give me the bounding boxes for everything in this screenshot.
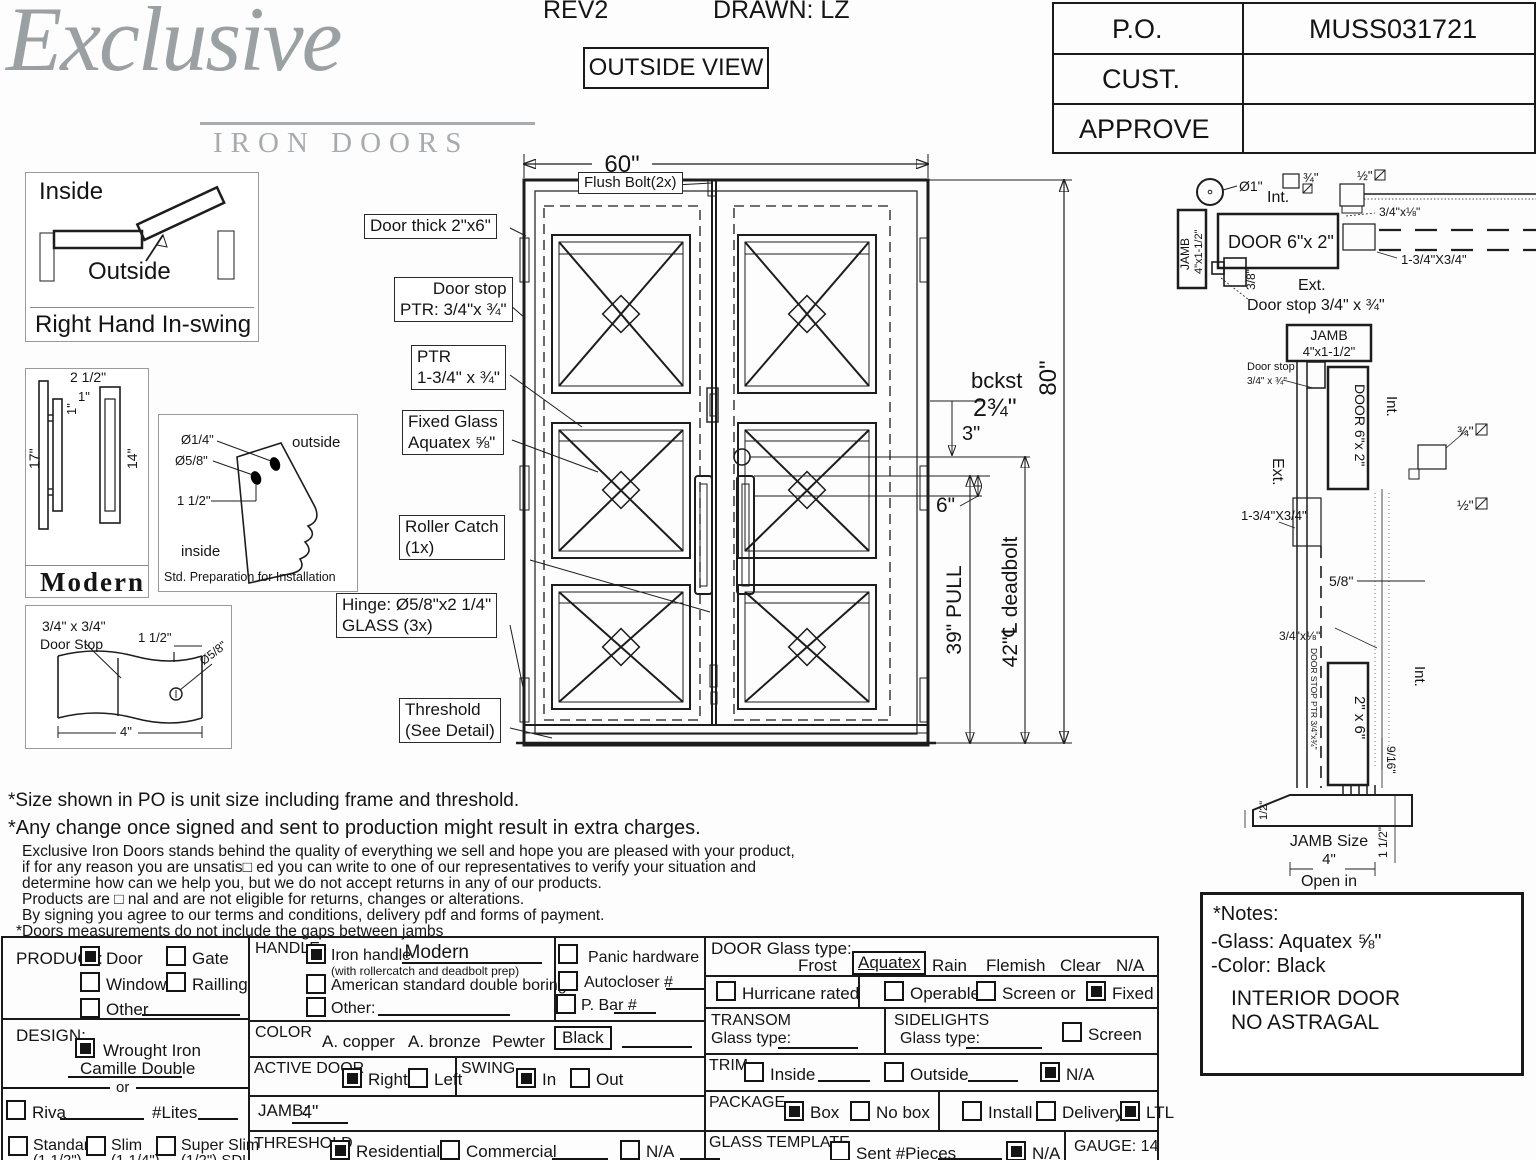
product-other-line[interactable] (142, 996, 240, 1016)
rev-label: REV2 (543, 0, 608, 25)
jamb-line (292, 1104, 348, 1124)
prep-caption: Std. Preparation for Installation (164, 570, 336, 584)
svg-text:80": 80" (1035, 360, 1062, 395)
dim-17: 17" (26, 448, 42, 469)
roller-l2: (1x) (405, 538, 499, 559)
hurricane-label: Hurricane rated (742, 984, 859, 1004)
doorstop-detail: 3/4" x 3/4" Door Stop 1 1/2" Ø5/8" 4" (25, 605, 232, 749)
package-nobox-checkbox[interactable] (850, 1101, 870, 1121)
design-slim-sub: (1 1/4") (111, 1152, 160, 1160)
notes-color: -Color: Black (1211, 955, 1325, 978)
threshold-l2: (See Detail) (405, 721, 495, 742)
gt-sent-checkbox[interactable] (830, 1141, 850, 1160)
svg-text:bckst: bckst (971, 368, 1022, 393)
stop-dim-112: 1 1/2" (138, 630, 172, 645)
handle-other-label: Other: (331, 1000, 375, 1018)
design-or-line-left (2, 1078, 110, 1089)
modern-handle-box: 2 1/2" 1" 1" 17" 14" Modern (25, 368, 149, 598)
svg-text:Ø1": Ø1" (1239, 178, 1263, 194)
door-stop-l1: Door stop (400, 279, 507, 300)
swing-diagram (26, 173, 258, 303)
po-value[interactable]: MUSS031721 (1309, 14, 1477, 45)
svg-text:3/4" x ¾": 3/4" x ¾" (1247, 376, 1287, 387)
transom-glass-line[interactable] (778, 1030, 858, 1049)
drawing-sheet: Exclusive IRON DOORS REV2 DRAWN: LZ OUTS… (0, 0, 1536, 1160)
handle-iron-checkbox[interactable] (306, 944, 326, 964)
x-panels (552, 235, 876, 709)
handle-american-label: American standard double boring (331, 977, 567, 995)
svg-text:2" x 6": 2" x 6" (1351, 696, 1368, 739)
trim-inside-label: Inside (770, 1065, 815, 1085)
svg-text:3/4"x⅛": 3/4"x⅛" (1279, 629, 1320, 643)
svg-text:4"x1-1/2": 4"x1-1/2" (1303, 344, 1356, 359)
callout-threshold: Threshold (See Detail) (399, 698, 501, 743)
svg-text:Int.: Int. (1267, 189, 1289, 206)
product-door-label: Door (106, 949, 143, 969)
product-railling-label: Railling (192, 975, 248, 995)
threshold-na-label: N/A (646, 1142, 674, 1160)
design-wrought-checkbox[interactable] (75, 1038, 95, 1058)
disclaimer-changes: *Any change once signed and sent to prod… (8, 817, 701, 840)
threshold-commercial-label: Commercial (466, 1142, 557, 1160)
svg-text:3/4"x⅛": 3/4"x⅛" (1379, 205, 1420, 219)
transom-label: TRANSOM (711, 1012, 791, 1030)
dim-dia14: Ø1/4" (181, 432, 214, 447)
outside-view-label: OUTSIDE VIEW (589, 54, 764, 82)
active-right-label: Right (368, 1070, 408, 1090)
divider-gauge (1064, 1132, 1066, 1160)
autocloser-label: Autocloser # (584, 974, 673, 992)
trim-inside-line[interactable] (818, 1062, 870, 1082)
svg-text:9/16": 9/16" (1384, 746, 1398, 774)
color-line[interactable] (622, 1028, 692, 1048)
dim-14: 14" (124, 448, 140, 469)
svg-text:3/8": 3/8" (1244, 269, 1258, 290)
handle-other-line[interactable] (378, 996, 510, 1016)
svg-text:3": 3" (962, 423, 980, 445)
product-window-checkbox[interactable] (80, 972, 100, 992)
panic-checkbox[interactable] (558, 944, 578, 964)
inside-note: inside (181, 543, 220, 560)
gt-na-label: N/A (1032, 1144, 1060, 1160)
swing-out-checkbox[interactable] (570, 1068, 590, 1088)
active-left-checkbox[interactable] (408, 1068, 428, 1088)
package-install-label: Install (988, 1103, 1032, 1123)
glass-aquatex-selected[interactable]: Aquatex (852, 951, 926, 975)
color-copper[interactable]: A. copper (322, 1032, 395, 1052)
door-thick-label: Door thick 2"x6" (370, 216, 491, 235)
svg-text:1-3/4"X3/4": 1-3/4"X3/4" (1241, 508, 1307, 523)
notes-glass: -Glass: Aquatex ⅝" (1211, 931, 1382, 954)
svg-text:Int.: Int. (1383, 396, 1400, 417)
glass-aquatex-label: Aquatex (858, 953, 920, 972)
dim-1a: 1" (64, 403, 79, 415)
gauge-value: GAUGE: 14 (1074, 1138, 1158, 1156)
fixed-label: Fixed (1112, 984, 1154, 1004)
gt-na-checkbox[interactable] (1006, 1141, 1026, 1160)
svg-text:JAMB: JAMB (1310, 327, 1347, 343)
threshold-na-checkbox[interactable] (620, 1140, 640, 1160)
design-lites-label: #Lites (152, 1103, 197, 1123)
svg-text:DOOR 6"x 2": DOOR 6"x 2" (1228, 232, 1334, 252)
callout-roller-catch: Roller Catch (1x) (399, 515, 505, 560)
threshold-residential-checkbox[interactable] (330, 1140, 350, 1160)
svg-text:1/2": 1/2" (1258, 801, 1270, 820)
operable-checkbox[interactable] (884, 981, 904, 1001)
design-or-line-right (136, 1078, 248, 1089)
design-lites-line[interactable] (198, 1100, 238, 1120)
handle-other-checkbox[interactable] (306, 997, 326, 1017)
hinge-l1: Hinge: Ø5/8"x2 1/4" (342, 595, 491, 616)
product-railling-checkbox[interactable] (166, 972, 186, 992)
fixed-checkbox[interactable] (1086, 981, 1106, 1001)
trim-outside-line[interactable] (968, 1062, 1018, 1082)
outside-view-box: OUTSIDE VIEW (583, 47, 769, 89)
trim-label: TRIM (709, 1057, 748, 1075)
svg-text:6": 6" (936, 494, 955, 517)
swing-caption: Right Hand In-swing (35, 311, 251, 339)
glass-clear[interactable]: Clear (1060, 956, 1101, 976)
threshold-commercial-checkbox[interactable] (440, 1140, 460, 1160)
approve-label: APPROVE (1079, 114, 1210, 145)
svg-text:½": ½" (1357, 168, 1373, 183)
product-window-label: Window (106, 975, 166, 995)
svg-text:1-3/4"X3/4": 1-3/4"X3/4" (1401, 252, 1467, 267)
screen-or-label: Screen or (1002, 984, 1076, 1004)
design-model-line (68, 1058, 182, 1078)
glass-flemish[interactable]: Flemish (986, 956, 1046, 976)
product-gate-checkbox[interactable] (166, 946, 186, 966)
cust-label: CUST. (1102, 64, 1180, 95)
stop-dim-label1: 3/4" x 3/4" (42, 618, 106, 634)
trim-na-checkbox[interactable] (1040, 1062, 1060, 1082)
package-ltl-checkbox[interactable] (1120, 1101, 1140, 1121)
deadbolt-circle (734, 449, 750, 465)
svg-text:2¾": 2¾" (973, 394, 1017, 422)
design-riva-checkbox[interactable] (6, 1100, 26, 1120)
design-standard-checkbox[interactable] (8, 1136, 28, 1156)
sidelights-label: SIDELIGHTS (894, 1012, 989, 1030)
design-standard-sub: (1 1/2") (33, 1152, 82, 1160)
screen-or-checkbox[interactable] (976, 981, 996, 1001)
modern-caption: Modern (40, 567, 145, 598)
color-pewter[interactable]: Pewter (492, 1032, 545, 1052)
swing-in-checkbox[interactable] (516, 1068, 536, 1088)
svg-text:Door stop 3/4" x ¾": Door stop 3/4" x ¾" (1247, 297, 1385, 314)
notes-interior-door: INTERIOR DOOR (1231, 987, 1400, 1011)
dim-dia58: Ø5/8" (175, 453, 208, 468)
package-delivery-checkbox[interactable] (1036, 1101, 1056, 1121)
drawn-label: DRAWN: LZ (713, 0, 850, 25)
ptr-l2: 1-3/4" x ¾" (417, 368, 500, 389)
svg-text:Int.: Int. (1411, 666, 1428, 687)
package-install-checkbox[interactable] (962, 1101, 982, 1121)
glass-frost[interactable]: Frost (798, 956, 837, 976)
fixed-glass-l2: Aquatex ⅝" (408, 433, 498, 454)
color-bronze[interactable]: A. bronze (408, 1032, 481, 1052)
svg-text:¾": ¾" (1303, 170, 1319, 185)
swing-legend: Inside Outside Right Hand In-swing (25, 172, 259, 342)
active-left-label: Left (434, 1070, 462, 1090)
fixed-glass-l1: Fixed Glass (408, 412, 498, 433)
dim-2-1-2: 2 1/2" (70, 369, 106, 385)
flush-bolt-label: Flush Bolt(2x) (584, 174, 677, 191)
po-label: P.O. (1112, 14, 1163, 45)
svg-text:JAMB Size: JAMB Size (1290, 833, 1368, 850)
svg-text:Ext.: Ext. (1298, 277, 1326, 294)
package-box-label: Box (810, 1103, 839, 1123)
color-black-selected[interactable]: Black (554, 1026, 612, 1050)
active-right-checkbox[interactable] (342, 1068, 362, 1088)
logo-exclusive: Exclusive (6, 0, 340, 92)
divider-package (938, 1092, 940, 1130)
hurricane-checkbox[interactable] (716, 981, 736, 1001)
svg-text:Ext.: Ext. (1269, 458, 1286, 486)
stop-dim-4: 4" (120, 724, 132, 739)
callout-door-thick: Door thick 2"x6" (364, 214, 497, 239)
swing-in-label: In (542, 1070, 556, 1090)
glass-template-label: GLASS TEMPLATE (709, 1134, 850, 1152)
notes-no-astragal: NO ASTRAGAL (1231, 1011, 1379, 1035)
prep-box: Ø1/4" outside Ø5/8" 1 1/2" inside Std. P… (158, 414, 358, 592)
package-label: PACKAGE (709, 1094, 785, 1112)
autocloser-line[interactable] (666, 970, 704, 990)
svg-text:4"x1-1/2": 4"x1-1/2" (1193, 229, 1205, 274)
gt-sent-line[interactable] (938, 1140, 1002, 1160)
stop-dim-label2: Door Stop (40, 636, 103, 652)
notes-box: *Notes: -Glass: Aquatex ⅝" -Color: Black… (1200, 892, 1524, 1076)
sidelights-screen-label: Screen (1088, 1025, 1142, 1045)
svg-text:DOOR STOP PTR 3/4"x¾": DOOR STOP PTR 3/4"x¾" (1309, 648, 1319, 750)
svg-text:½": ½" (1457, 497, 1474, 513)
svg-text:42"℄ deadbolt: 42"℄ deadbolt (999, 536, 1022, 667)
pbar-checkbox[interactable] (556, 994, 576, 1014)
handle-american-checkbox[interactable] (306, 974, 326, 994)
svg-text:5/8": 5/8" (1329, 573, 1353, 589)
door-stop-l2: PTR: 3/4"x ¾" (400, 300, 507, 321)
side-section-detail: JAMB 4"x1-1/2" Door stop 3/4" x ¾" Ext. … (1235, 318, 1535, 895)
glass-rain[interactable]: Rain (932, 956, 967, 976)
dim-1b: 1" (78, 389, 90, 404)
handle-iron-line (402, 944, 542, 964)
color-label: COLOR (255, 1024, 312, 1042)
svg-text:4": 4" (1322, 851, 1336, 868)
callout-door-stop: Door stop PTR: 3/4"x ¾" (394, 277, 513, 322)
head-section-detail: Ø1" Int. ¾" ½" JAMB 4"x1-1/2" DOOR 6"x 2… (1165, 158, 1536, 333)
product-gate-label: Gate (192, 949, 229, 969)
logo-underline (200, 122, 535, 125)
trim-na-label: N/A (1066, 1065, 1094, 1085)
glass-na[interactable]: N/A (1116, 956, 1144, 976)
panic-label: Panic hardware (588, 949, 699, 967)
divider-transom (884, 1009, 886, 1053)
svg-text:Door stop: Door stop (1247, 361, 1295, 373)
dim-1-1-2: 1 1/2" (177, 493, 211, 508)
po-table: P.O. MUSS031721 CUST. APPROVE (1052, 2, 1536, 154)
design-riva-line[interactable] (60, 1100, 144, 1120)
package-box-checkbox[interactable] (784, 1101, 804, 1121)
disclaimer-size: *Size shown in PO is unit size including… (8, 790, 519, 812)
notes-title: *Notes: (1213, 903, 1279, 926)
callout-hinge: Hinge: Ø5/8"x2 1/4" GLASS (3x) (336, 593, 497, 638)
hinge-l2: GLASS (3x) (342, 616, 491, 637)
operable-label: Operable (910, 984, 980, 1004)
roller-l1: Roller Catch (405, 517, 499, 538)
ptr-l1: PTR (417, 347, 500, 368)
product-other-checkbox[interactable] (80, 998, 100, 1018)
svg-text:1 1/2": 1 1/2" (1376, 827, 1390, 858)
svg-text:Open in: Open in (1301, 873, 1357, 890)
package-ltl-label: LTL (1146, 1103, 1174, 1123)
svg-text:DOOR 6"x 2": DOOR 6"x 2" (1352, 384, 1368, 466)
trim-outside-label: Outside (910, 1065, 969, 1085)
design-slim-checkbox[interactable] (86, 1136, 106, 1156)
svg-text:39" PULL: 39" PULL (943, 565, 966, 654)
color-black-label: Black (562, 1028, 604, 1047)
sidelights-screen-checkbox[interactable] (1062, 1022, 1082, 1042)
autocloser-checkbox[interactable] (558, 971, 578, 991)
handle-iron-note: (with rollercatch and deadbolt prep) (331, 964, 519, 978)
threshold-residential-label: Residential (356, 1142, 440, 1160)
trim-inside-checkbox[interactable] (744, 1062, 764, 1082)
product-door-checkbox[interactable] (80, 946, 100, 966)
svg-text:JAMB: JAMB (1178, 238, 1192, 270)
package-delivery-label: Delivery (1062, 1103, 1123, 1123)
threshold-commercial-line[interactable] (552, 1140, 608, 1160)
swing-label: SWING (461, 1060, 515, 1078)
package-nobox-label: No box (876, 1103, 930, 1123)
callout-fixed-glass: Fixed Glass Aquatex ⅝" (402, 410, 504, 455)
swing-out-label: Out (596, 1070, 623, 1090)
sidelights-glass-line[interactable] (966, 1030, 1042, 1049)
pbar-line[interactable] (614, 994, 656, 1014)
design-superslim-sub: (1/2") SDL (181, 1152, 251, 1160)
design-superslim-checkbox[interactable] (156, 1136, 176, 1156)
trim-outside-checkbox[interactable] (884, 1062, 904, 1082)
callout-flush-bolt: Flush Bolt(2x) (578, 172, 683, 194)
callout-ptr: PTR 1-3/4" x ¾" (411, 345, 506, 390)
design-or-label: or (116, 1079, 129, 1096)
threshold-l1: Threshold (405, 700, 495, 721)
